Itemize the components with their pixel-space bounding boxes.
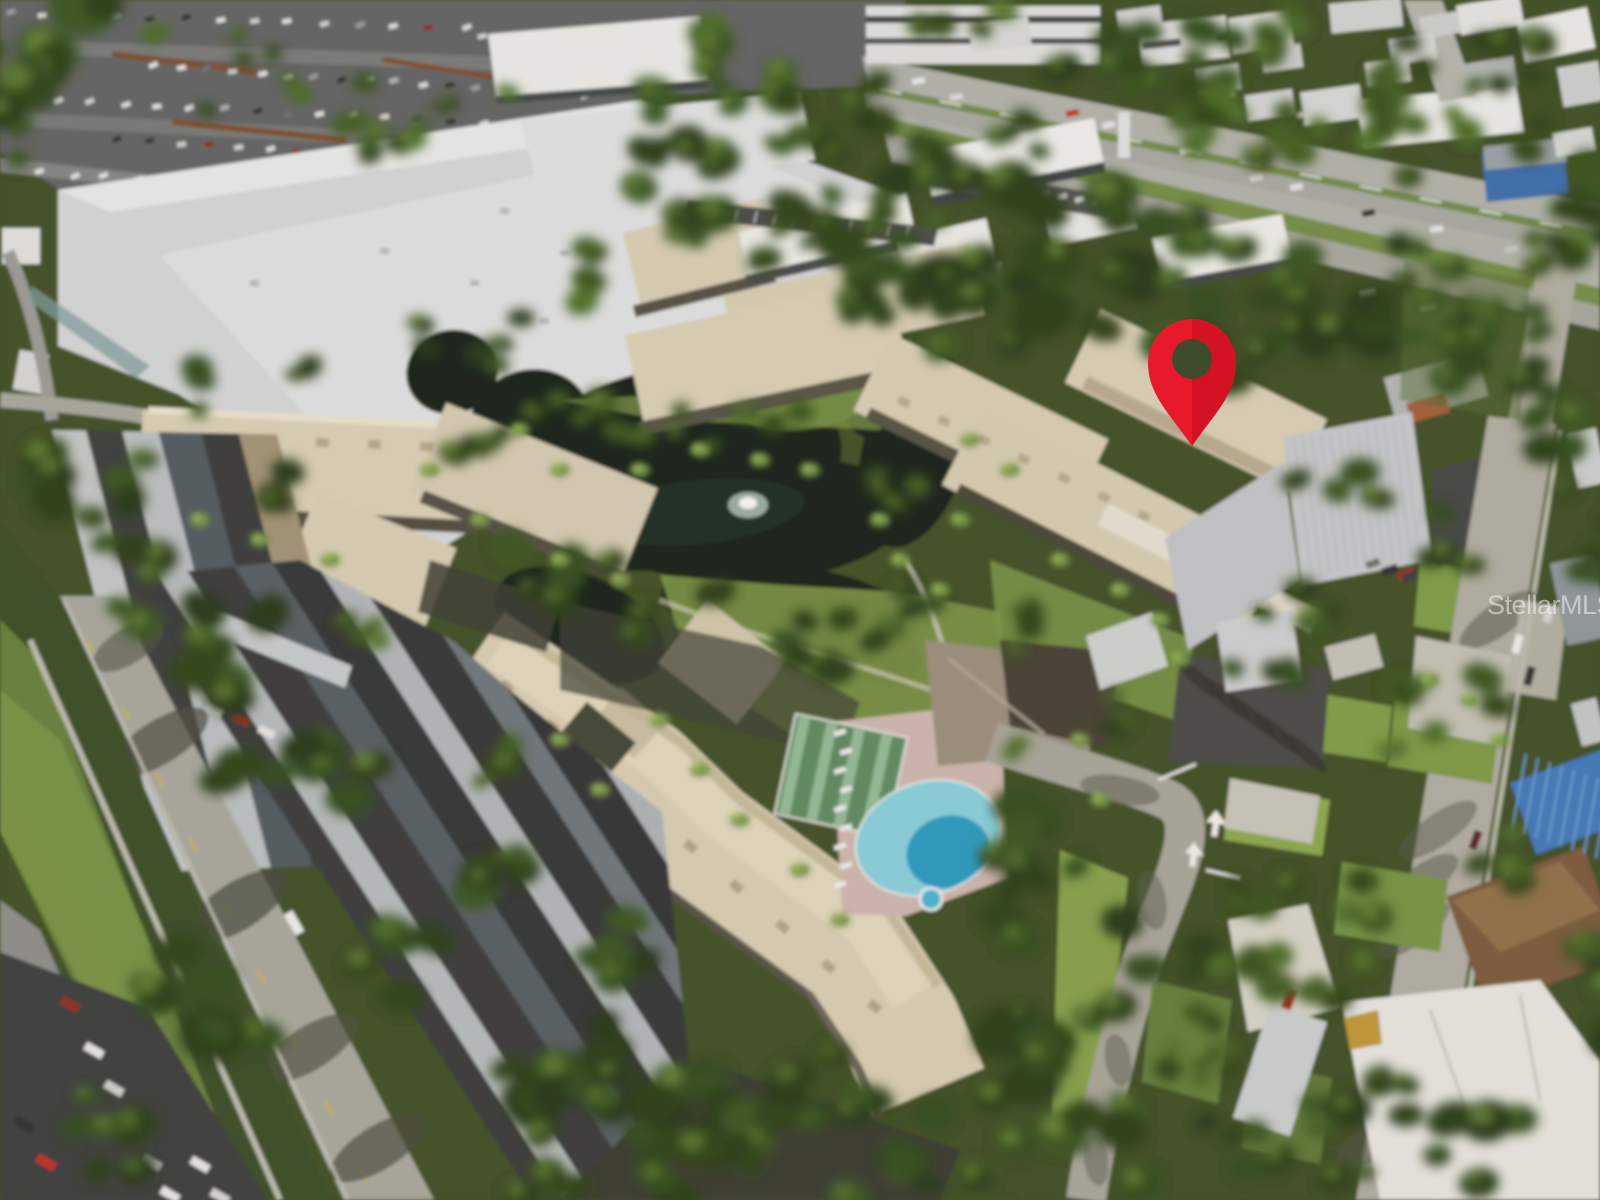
svg-text:StellarMLS: StellarMLS [1487, 590, 1600, 620]
